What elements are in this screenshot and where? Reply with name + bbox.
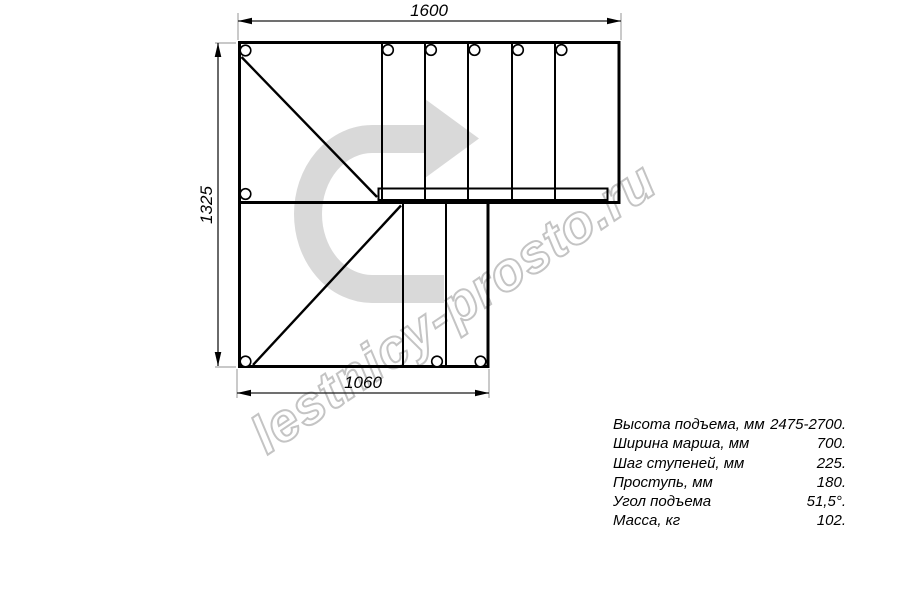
spec-label: Высота подъема, мм: [613, 415, 765, 434]
spec-value: 180.: [817, 473, 846, 492]
spec-value: 2475-2700.: [770, 415, 846, 434]
dim-arrow-left: [238, 18, 252, 25]
stair-plan-page: lestnicy-prosto.ru 1600 1325: [0, 0, 900, 600]
stair-direction-arrow-icon: [308, 99, 479, 289]
dim-arrow-right: [607, 18, 621, 25]
dimension-top-label: 1600: [410, 1, 448, 20]
spec-table: Высота подъема, мм 2475-2700. Ширина мар…: [613, 415, 846, 531]
spec-value: 225.: [817, 454, 846, 473]
spec-label: Проступь, мм: [613, 473, 713, 492]
spec-label: Угол подъема: [613, 492, 711, 511]
dimension-left: 1325: [197, 43, 221, 366]
spec-label: Шаг ступеней, мм: [613, 454, 744, 473]
mount-hole: [469, 45, 480, 56]
spec-row-mass: Масса, кг 102.: [613, 511, 846, 530]
mount-hole: [475, 356, 486, 367]
upper-tread-lines: [382, 44, 555, 201]
dimension-bottom: 1060: [237, 373, 489, 396]
spec-row-flight-width: Ширина марша, мм 700.: [613, 434, 846, 453]
spec-row-rise-angle: Угол подъема 51,5°.: [613, 492, 846, 511]
spec-label: Масса, кг: [613, 511, 680, 530]
mount-hole: [556, 45, 567, 56]
spec-value: 51,5°.: [807, 492, 846, 511]
mount-hole: [432, 356, 443, 367]
dimension-top: 1600: [238, 1, 621, 24]
spec-label: Ширина марша, мм: [613, 434, 749, 453]
direction-arrow-head: [425, 99, 479, 178]
mount-hole: [513, 45, 524, 56]
spec-row-tread: Проступь, мм 180.: [613, 473, 846, 492]
dim-arrow-right: [475, 390, 489, 397]
spec-row-rise-height: Высота подъема, мм 2475-2700.: [613, 415, 846, 434]
mount-hole: [426, 45, 437, 56]
mount-hole: [240, 189, 251, 200]
mount-hole: [383, 45, 394, 56]
mount-hole: [240, 356, 251, 367]
spec-value: 102.: [817, 511, 846, 530]
spec-row-step-pitch: Шаг ступеней, мм 225.: [613, 454, 846, 473]
direction-arrow-shaft: [308, 139, 444, 289]
spec-value: 700.: [817, 434, 846, 453]
dim-arrow-top: [215, 43, 222, 57]
mount-hole: [240, 45, 251, 56]
dimension-bottom-label: 1060: [344, 373, 382, 392]
dimension-left-label: 1325: [197, 186, 216, 224]
dim-arrow-left: [237, 390, 251, 397]
dim-arrow-bottom: [215, 352, 222, 366]
